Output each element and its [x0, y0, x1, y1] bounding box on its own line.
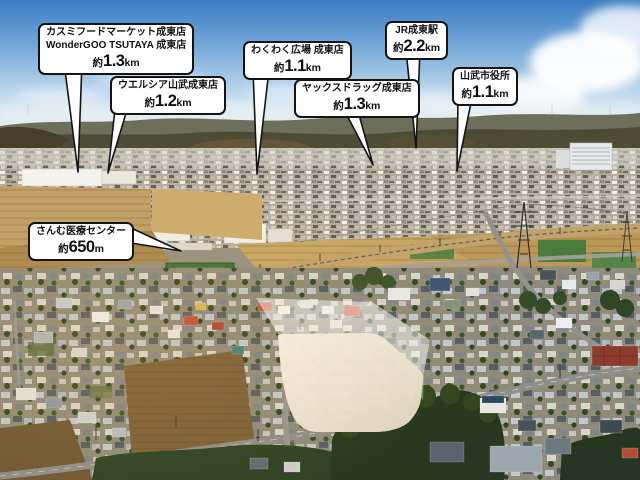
- distance: 約2.2km: [393, 37, 440, 56]
- distance: 約1.3km: [302, 95, 412, 114]
- callout-yacks-drug: ヤックスドラッグ成東店 約1.3km: [294, 79, 420, 118]
- place-name: 山武市役所: [460, 70, 510, 83]
- place-name: わくわく広場 成東店: [251, 44, 344, 57]
- callout-wakuwaku-hiroba: わくわく広場 成東店 約1.1km: [243, 41, 352, 80]
- evening-light: [0, 140, 640, 480]
- place-name: ヤックスドラッグ成東店: [302, 82, 412, 95]
- distance: 約1.1km: [460, 83, 510, 102]
- distance: 約1.3km: [46, 52, 186, 71]
- callout-kasumi-wondergoo: カスミフードマーケット成東店 WonderGOO TSUTAYA 成東店 約1.…: [38, 23, 194, 75]
- aerial-photo-page: カスミフードマーケット成東店 WonderGOO TSUTAYA 成東店 約1.…: [0, 0, 640, 480]
- place-name: カスミフードマーケット成東店: [46, 26, 186, 39]
- distance: 約1.2km: [118, 92, 218, 111]
- distance: 約1.1km: [251, 57, 344, 76]
- distance: 約650m: [36, 238, 126, 257]
- place-name: さんむ医療センター: [36, 225, 126, 238]
- place-name: WonderGOO TSUTAYA 成東店: [46, 39, 186, 52]
- callout-jr-naruto-station: JR成東駅 約2.2km: [385, 21, 448, 60]
- callout-sammu-city-hall: 山武市役所 約1.1km: [452, 67, 518, 106]
- callout-sammu-medical-center: さんむ医療センター 約650m: [28, 222, 134, 261]
- callout-welcia: ウエルシア山武成東店 約1.2km: [110, 76, 226, 115]
- place-name: JR成東駅: [393, 24, 440, 37]
- place-name: ウエルシア山武成東店: [118, 79, 218, 92]
